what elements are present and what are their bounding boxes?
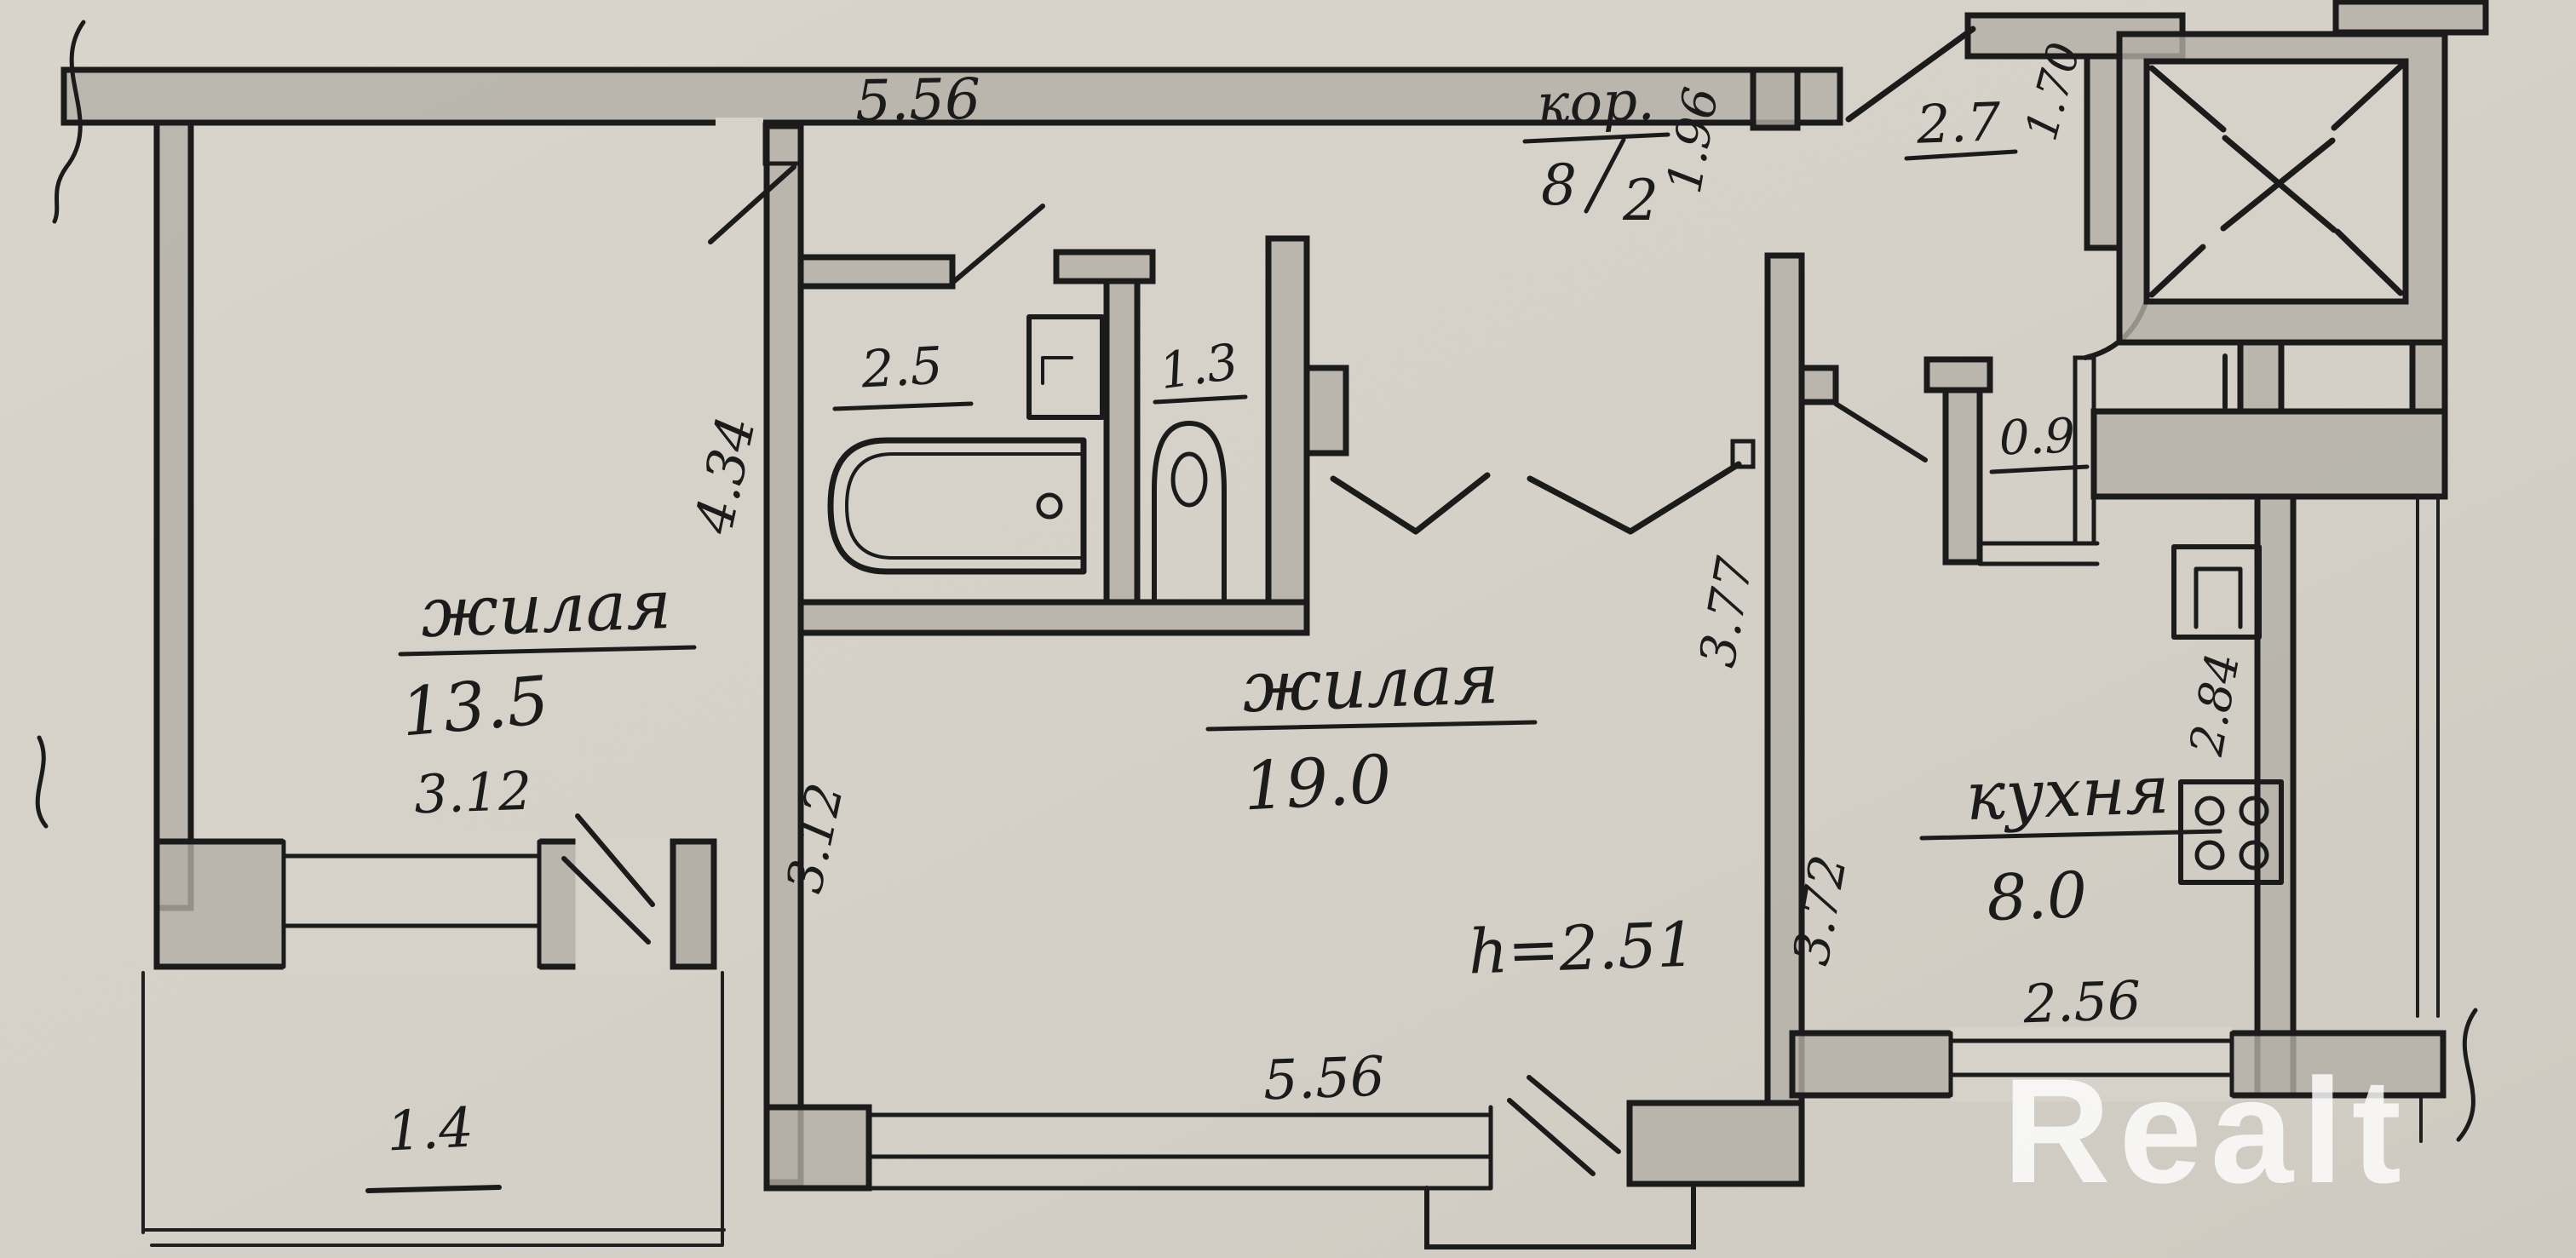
closet-area: 0.9 bbox=[1998, 408, 2076, 466]
toilet-area: 1.3 bbox=[1156, 332, 1242, 400]
room2-name: жилая bbox=[1241, 639, 1501, 728]
corridor-name: кор. bbox=[1536, 70, 1656, 137]
corridor-area-num: 8 bbox=[1541, 152, 1577, 218]
hall-area: 2.7 bbox=[1915, 90, 2003, 155]
dim-kitchen-width: 2.56 bbox=[2021, 969, 2142, 1036]
room1-area: 13.5 bbox=[398, 663, 552, 752]
bathroom-area: 2.5 bbox=[859, 336, 944, 400]
room2-area: 19.0 bbox=[1242, 742, 1394, 826]
dim-room1-width: 3.12 bbox=[413, 760, 533, 826]
elevator-shaft-icon bbox=[2119, 34, 2445, 342]
dim-living2-width: 5.56 bbox=[1262, 1046, 1386, 1113]
kitchen-name: кухня bbox=[1964, 752, 2171, 836]
kitchen-area: 8.0 bbox=[1986, 859, 2089, 935]
floor-plan-page: 5.56 4.34 3.12 3.12 1.96 1.70 3.77 3.72 … bbox=[0, 0, 2576, 1258]
floor-plan-drawing: 5.56 4.34 3.12 3.12 1.96 1.70 3.77 3.72 … bbox=[0, 0, 2576, 1258]
ceiling-height-note: h=2.51 bbox=[1467, 908, 1697, 987]
dim-top-width: 5.56 bbox=[854, 66, 980, 135]
realt-watermark: Realt bbox=[2003, 1048, 2410, 1215]
corridor-area-den: 2 bbox=[1622, 168, 1659, 233]
balcony-area: 1.4 bbox=[385, 1096, 475, 1163]
room1-name: жилая bbox=[419, 565, 672, 652]
